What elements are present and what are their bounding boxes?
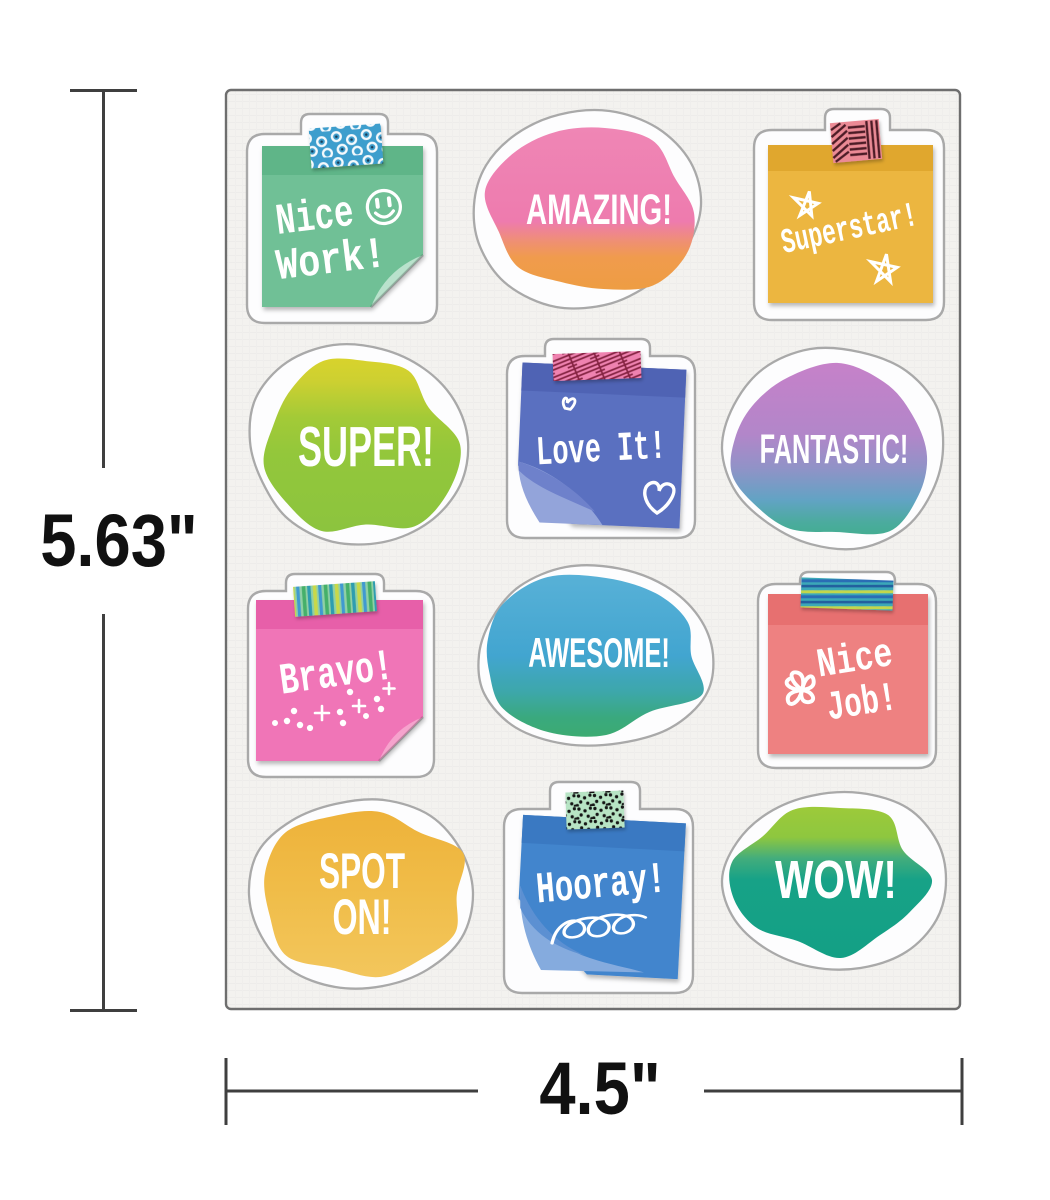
svg-text:SUPER!: SUPER! [298,416,434,479]
svg-text:WOW!: WOW! [775,851,897,911]
svg-text:4.5": 4.5" [539,1047,660,1130]
svg-text:AWESOME!: AWESOME! [528,631,670,677]
svg-text:5.63": 5.63" [40,499,198,582]
svg-text:FANTASTIC!: FANTASTIC! [760,427,909,473]
svg-text:AMAZING!: AMAZING! [526,185,672,233]
svg-text:Love It!: Love It! [535,425,667,478]
svg-text:ON!: ON! [332,889,391,945]
